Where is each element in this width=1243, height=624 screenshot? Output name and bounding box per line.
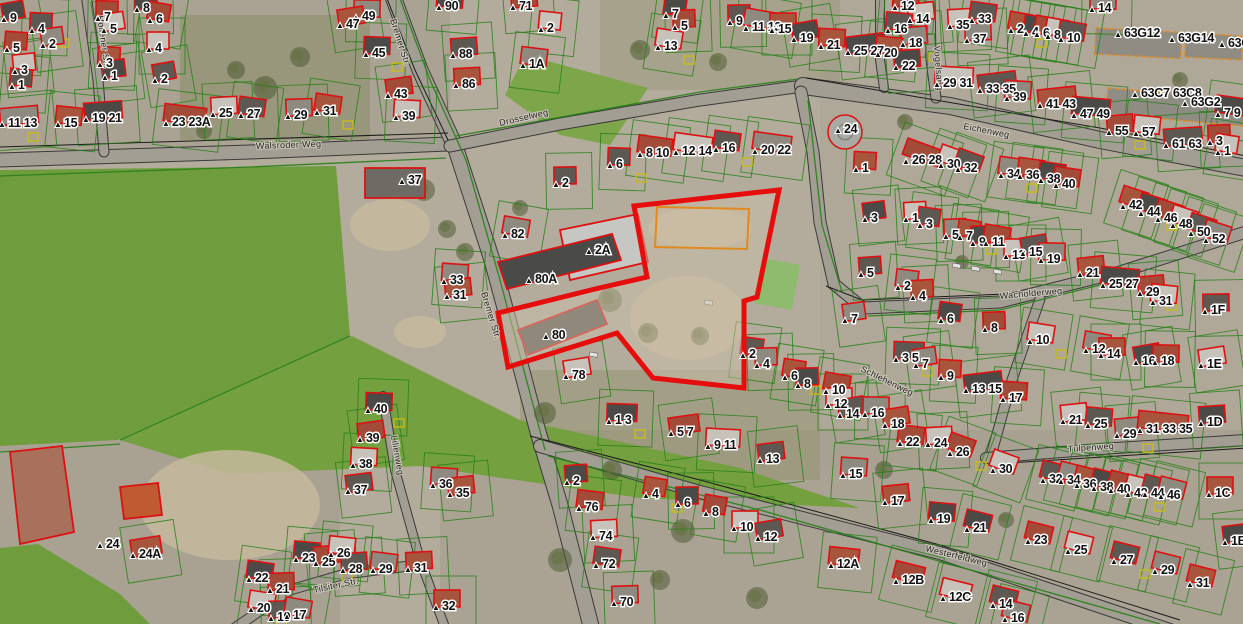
house-number-label: 78 xyxy=(572,368,586,382)
house-number-label: 9 11 xyxy=(714,438,737,452)
house-point-marker: ▲ xyxy=(726,18,734,27)
house-number-label: 5 xyxy=(867,266,874,280)
house-number-label: 49 xyxy=(362,9,376,23)
house-point-marker: ▲ xyxy=(937,161,945,170)
house-point-marker: ▲ xyxy=(313,108,321,117)
house-point-marker: ▲ xyxy=(362,50,370,59)
house-point-marker: ▲ xyxy=(790,35,798,44)
house-point-marker: ▲ xyxy=(129,551,137,560)
house-point-marker: ▲ xyxy=(754,534,762,543)
house-point-marker: ▲ xyxy=(552,180,560,189)
map-viewport[interactable]: Walsroder WegHollener Str.Bremer Str.Bre… xyxy=(0,0,1243,624)
house-point-marker: ▲ xyxy=(1201,307,1209,316)
house-point-marker: ▲ xyxy=(827,561,835,570)
house-point-marker: ▲ xyxy=(916,221,924,230)
house-number-label: 76 xyxy=(585,500,599,514)
house-point-marker: ▲ xyxy=(443,292,451,301)
house-point-marker: ▲ xyxy=(54,120,62,129)
house-number-label: 10 xyxy=(1036,333,1050,347)
house-number-label: 37 xyxy=(354,483,368,497)
house-number-label: 14 xyxy=(846,407,860,421)
house-number-label: 3 xyxy=(926,217,933,231)
house-point-marker: ▲ xyxy=(742,24,750,33)
house-point-marker: ▲ xyxy=(404,565,412,574)
house-number-label: 25 xyxy=(219,106,233,120)
house-number-label: 1E xyxy=(1207,357,1222,371)
house-point-marker: ▲ xyxy=(874,50,882,59)
house-number-label: 12 14 xyxy=(682,144,712,158)
house-point-marker: ▲ xyxy=(1052,181,1060,190)
house-point-marker: ▲ xyxy=(1044,32,1052,41)
house-point-marker: ▲ xyxy=(1131,90,1139,99)
house-point-marker: ▲ xyxy=(982,239,990,248)
house-number-label: 72 xyxy=(602,557,616,571)
house-number-label: 14 xyxy=(1098,1,1112,15)
house-number-label: 82 xyxy=(511,227,525,241)
tree-crown xyxy=(229,63,239,73)
house-point-marker: ▲ xyxy=(96,60,104,69)
house-point-marker: ▲ xyxy=(892,63,900,72)
house-number-label: 8 xyxy=(991,321,998,335)
house-point-marker: ▲ xyxy=(1084,421,1092,430)
house-point-marker: ▲ xyxy=(768,26,776,35)
house-point-marker: ▲ xyxy=(344,487,352,496)
house-point-marker: ▲ xyxy=(1110,557,1118,566)
planned-building-outline[interactable] xyxy=(655,207,749,249)
house-number-label: 29 xyxy=(1161,563,1175,577)
house-point-marker: ▲ xyxy=(525,276,533,285)
house-number-label: 3 xyxy=(106,56,113,70)
house-point-marker: ▲ xyxy=(662,11,670,20)
house-number-label: 90 xyxy=(445,0,459,13)
house-number-label: 4 xyxy=(38,22,45,36)
house-point-marker: ▲ xyxy=(1197,419,1205,428)
house-point-marker: ▲ xyxy=(101,73,109,82)
house-number-label: 31 33 35 xyxy=(1146,422,1193,436)
house-point-marker: ▲ xyxy=(1002,252,1010,261)
house-point-marker: ▲ xyxy=(605,417,613,426)
house-point-marker: ▲ xyxy=(999,395,1007,404)
house-number-label: 17 xyxy=(891,494,905,508)
house-number-label: 7 xyxy=(922,357,929,371)
house-point-marker: ▲ xyxy=(1141,490,1149,499)
house-point-marker: ▲ xyxy=(364,406,372,415)
house-number-label: 63G14 xyxy=(1178,31,1214,45)
house-point-marker: ▲ xyxy=(440,277,448,286)
house-point-marker: ▲ xyxy=(896,439,904,448)
house-point-marker: ▲ xyxy=(968,16,976,25)
house-point-marker: ▲ xyxy=(894,283,902,292)
house-point-marker: ▲ xyxy=(327,550,335,559)
house-point-marker: ▲ xyxy=(671,23,679,32)
house-number-label: 1B xyxy=(1231,534,1243,548)
house-point-marker: ▲ xyxy=(712,145,720,154)
house-number-label: 37 xyxy=(973,32,987,46)
tree-crown xyxy=(514,202,523,211)
house-point-marker: ▲ xyxy=(1076,270,1084,279)
house-point-marker: ▲ xyxy=(82,115,90,124)
house-point-marker: ▲ xyxy=(892,577,900,586)
house-number-label: 2 xyxy=(562,176,569,190)
house-number-label: 5 xyxy=(13,41,20,55)
house-point-marker: ▲ xyxy=(1105,128,1113,137)
house-number-label: 6 xyxy=(684,496,691,510)
house-number-label: 21 xyxy=(973,521,987,535)
house-point-marker: ▲ xyxy=(592,561,600,570)
house-point-marker: ▲ xyxy=(794,381,802,390)
house-number-label: 31 xyxy=(453,288,467,302)
house-number-label: 52 xyxy=(1212,232,1226,246)
house-point-marker: ▲ xyxy=(563,478,571,487)
tree-crown xyxy=(633,43,644,54)
house-point-marker: ▲ xyxy=(927,516,935,525)
house-point-marker: ▲ xyxy=(1057,35,1065,44)
house-point-marker: ▲ xyxy=(1097,351,1105,360)
house-point-marker: ▲ xyxy=(642,491,650,500)
house-point-marker: ▲ xyxy=(94,14,102,23)
house-point-marker: ▲ xyxy=(1136,426,1144,435)
house-point-marker: ▲ xyxy=(704,442,712,451)
tree-crown xyxy=(551,551,564,564)
house-number-label: 33 35 xyxy=(986,82,1016,96)
house-number-label: 9 xyxy=(947,369,954,383)
house-point-marker: ▲ xyxy=(1090,484,1098,493)
house-point-marker: ▲ xyxy=(963,36,971,45)
house-point-marker: ▲ xyxy=(1070,111,1078,120)
house-point-marker: ▲ xyxy=(891,3,899,12)
house-point-marker: ▲ xyxy=(1082,346,1090,355)
house-number-label: 14 xyxy=(999,597,1013,611)
house-number-label: 46 xyxy=(1167,488,1181,502)
house-point-marker: ▲ xyxy=(824,401,832,410)
building-large[interactable] xyxy=(10,446,74,544)
house-point-marker: ▲ xyxy=(145,45,153,54)
house-point-marker: ▲ xyxy=(962,386,970,395)
house-point-marker: ▲ xyxy=(937,373,945,382)
house-point-marker: ▲ xyxy=(969,239,977,248)
house-number-label: 29 31 xyxy=(943,76,973,90)
aerial-cadastral-map[interactable]: Walsroder WegHollener Str.Bremer Str.Bre… xyxy=(0,0,1243,624)
house-point-marker: ▲ xyxy=(432,603,440,612)
house-point-marker: ▲ xyxy=(245,575,253,584)
house-number-label: 57 xyxy=(1142,125,1156,139)
house-number-label: 31 xyxy=(323,104,337,118)
house-point-marker: ▲ xyxy=(1016,172,1024,181)
house-number-label: 12 xyxy=(764,530,778,544)
house-number-label: 19 xyxy=(937,512,951,526)
house-number-label: 1 xyxy=(111,69,118,83)
house-point-marker: ▲ xyxy=(356,435,364,444)
house-point-marker: ▲ xyxy=(836,411,844,420)
house-number-label: 16 xyxy=(871,406,885,420)
tree-crown xyxy=(877,463,887,473)
house-point-marker: ▲ xyxy=(1186,580,1194,589)
house-number-label: 25 27 xyxy=(1109,277,1139,291)
house-number-label: 24 xyxy=(934,436,948,450)
house-point-marker: ▲ xyxy=(1007,26,1015,35)
house-point-marker: ▲ xyxy=(1151,358,1159,367)
house-number-label: 38 xyxy=(359,457,373,471)
house-point-marker: ▲ xyxy=(946,22,954,31)
house-number-label: 20 22 xyxy=(761,143,791,157)
house-number-label: 23 xyxy=(1034,533,1048,547)
house-point-marker: ▲ xyxy=(997,171,1005,180)
house-point-marker: ▲ xyxy=(509,3,517,12)
tree-crown xyxy=(440,222,450,232)
house-number-label: 1 3 xyxy=(615,413,632,427)
house-number-label: 13 15 xyxy=(972,382,1002,396)
house-number-label: 39 xyxy=(402,109,416,123)
house-point-marker: ▲ xyxy=(654,43,662,52)
house-number-label: 4 xyxy=(155,41,162,55)
house-point-marker: ▲ xyxy=(933,80,941,89)
house-number-label: 80A xyxy=(535,272,557,286)
house-point-marker: ▲ xyxy=(1202,236,1210,245)
house-point-marker: ▲ xyxy=(1073,481,1081,490)
house-number-label: 21 xyxy=(1086,266,1100,280)
house-number-label: 10 xyxy=(832,383,846,397)
house-point-marker: ▲ xyxy=(1151,567,1159,576)
house-number-label: 12A xyxy=(837,557,859,571)
house-number-label: 5 7 xyxy=(677,425,694,439)
house-number-label: 8 10 xyxy=(646,146,669,160)
house-point-marker: ▲ xyxy=(1205,490,1213,499)
house-number-label: 17 xyxy=(293,608,307,622)
house-point-marker: ▲ xyxy=(369,566,377,575)
house-number-label: 19 21 xyxy=(92,111,122,125)
house-number-label: 63G12 xyxy=(1124,26,1160,40)
house-point-marker: ▲ xyxy=(1026,337,1034,346)
tree-crown xyxy=(605,463,616,474)
house-point-marker: ▲ xyxy=(881,498,889,507)
house-number-label: 8 xyxy=(143,1,150,15)
house-number-label: 14 xyxy=(1107,347,1121,361)
house-point-marker: ▲ xyxy=(237,111,245,120)
house-number-label: 61 63 xyxy=(1172,137,1202,151)
house-number-label: 71 xyxy=(519,0,533,13)
house-point-marker: ▲ xyxy=(292,555,300,564)
house-number-label: 21 xyxy=(276,582,290,596)
house-number-label: 3 xyxy=(21,63,28,77)
house-point-marker: ▲ xyxy=(1107,486,1115,495)
house-number-label: 18 xyxy=(1161,354,1175,368)
house-point-marker: ▲ xyxy=(861,215,869,224)
house-number-label: 22 xyxy=(906,435,920,449)
house-point-marker: ▲ xyxy=(989,601,997,610)
dirt-patch xyxy=(350,199,430,251)
house-point-marker: ▲ xyxy=(1132,358,1140,367)
house-point-marker: ▲ xyxy=(1197,361,1205,370)
house-number-label: 33 xyxy=(978,12,992,26)
house-point-marker: ▲ xyxy=(1154,215,1162,224)
house-point-marker: ▲ xyxy=(1124,490,1132,499)
house-number-label: 39 xyxy=(366,431,380,445)
house-point-marker: ▲ xyxy=(881,421,889,430)
house-point-marker: ▲ xyxy=(247,605,255,614)
house-point-marker: ▲ xyxy=(542,332,550,341)
house-number-label: 15 xyxy=(849,467,863,481)
house-number-label: 5 xyxy=(110,22,117,36)
house-point-marker: ▲ xyxy=(446,490,454,499)
house-point-marker: ▲ xyxy=(8,82,16,91)
tree-crown xyxy=(956,256,964,264)
house-point-marker: ▲ xyxy=(822,387,830,396)
house-number-label: 6 xyxy=(947,312,954,326)
house-point-marker: ▲ xyxy=(429,481,437,490)
house-point-marker: ▲ xyxy=(146,16,154,25)
house-point-marker: ▲ xyxy=(501,231,509,240)
house-point-marker: ▲ xyxy=(852,165,860,174)
house-point-marker: ▲ xyxy=(1059,417,1067,426)
house-number-label: 12B xyxy=(902,573,924,587)
house-number-label: 13 xyxy=(664,39,678,53)
house-number-label: 15 xyxy=(64,116,78,130)
house-point-marker: ▲ xyxy=(1037,176,1045,185)
house-number-label: 8 xyxy=(712,505,719,519)
house-point-marker: ▲ xyxy=(283,612,291,621)
house-point-marker: ▲ xyxy=(817,42,825,51)
house-point-marker: ▲ xyxy=(1187,229,1195,238)
house-point-marker: ▲ xyxy=(1001,615,1009,624)
house-point-marker: ▲ xyxy=(1149,298,1157,307)
house-point-marker: ▲ xyxy=(589,533,597,542)
house-point-marker: ▲ xyxy=(266,586,274,595)
house-number-label: 19 xyxy=(1047,252,1061,266)
tree-crown xyxy=(1000,514,1009,523)
house-number-label: 22 xyxy=(902,59,916,73)
house-number-label: 4 xyxy=(652,487,659,501)
house-point-marker: ▲ xyxy=(1119,202,1127,211)
house-number-label: 35 xyxy=(456,486,470,500)
house-point-marker: ▲ xyxy=(1157,492,1165,501)
house-number-label: 33 xyxy=(450,273,464,287)
house-number-label: 15 xyxy=(778,22,792,36)
house-point-marker: ▲ xyxy=(392,113,400,122)
house-number-label: 18 xyxy=(909,36,923,50)
house-number-label: 13 xyxy=(766,452,780,466)
house-point-marker: ▲ xyxy=(606,161,614,170)
house-number-label: 24 xyxy=(844,122,858,136)
house-point-marker: ▲ xyxy=(1214,110,1222,119)
house-point-marker: ▲ xyxy=(753,361,761,370)
house-number-label: 39 xyxy=(1013,90,1027,104)
house-point-marker: ▲ xyxy=(1036,101,1044,110)
house-point-marker: ▲ xyxy=(963,525,971,534)
house-point-marker: ▲ xyxy=(1137,209,1145,218)
building-large[interactable] xyxy=(120,483,162,519)
house-number-label: 6 xyxy=(616,157,623,171)
tree-crown xyxy=(653,573,664,584)
house-point-marker: ▲ xyxy=(976,86,984,95)
house-number-label: 88 xyxy=(459,47,473,61)
dirt-patch xyxy=(140,450,320,560)
house-point-marker: ▲ xyxy=(1136,289,1144,298)
tree-crown xyxy=(711,55,721,65)
house-point-marker: ▲ xyxy=(209,110,217,119)
house-point-marker: ▲ xyxy=(537,25,545,34)
house-number-label: 2 xyxy=(573,474,580,488)
house-point-marker: ▲ xyxy=(11,67,19,76)
house-number-label: 8 xyxy=(804,377,811,391)
house-point-marker: ▲ xyxy=(267,614,275,623)
house-point-marker: ▲ xyxy=(384,91,392,100)
house-point-marker: ▲ xyxy=(909,293,917,302)
house-number-label: 26 xyxy=(337,546,351,560)
house-point-marker: ▲ xyxy=(3,45,11,54)
house-number-label: 2 xyxy=(904,279,911,293)
house-number-label: 29 xyxy=(379,562,393,576)
house-number-label: 16 xyxy=(1011,611,1025,624)
house-number-label: 18 xyxy=(891,417,905,431)
house-number-label: 31 xyxy=(1196,576,1210,590)
house-number-label: 27 xyxy=(1120,553,1134,567)
house-point-marker: ▲ xyxy=(162,119,170,128)
house-point-marker: ▲ xyxy=(730,524,738,533)
house-number-label: 43 xyxy=(394,87,408,101)
house-number-label: 47 xyxy=(346,17,360,31)
house-point-marker: ▲ xyxy=(1206,138,1214,147)
house-number-label: 4 xyxy=(919,289,926,303)
house-point-marker: ▲ xyxy=(1218,40,1226,49)
house-point-marker: ▲ xyxy=(1003,94,1011,103)
house-point-marker: ▲ xyxy=(1024,537,1032,546)
house-point-marker: ▲ xyxy=(1037,256,1045,265)
house-point-marker: ▲ xyxy=(902,215,910,224)
house-number-label: 2A xyxy=(595,243,611,257)
house-number-label: 28 xyxy=(349,562,363,576)
house-point-marker: ▲ xyxy=(857,270,865,279)
house-point-marker: ▲ xyxy=(1221,538,1229,547)
house-point-marker: ▲ xyxy=(834,126,842,135)
house-number-label: 31 xyxy=(1159,294,1173,308)
house-point-marker: ▲ xyxy=(1181,99,1189,108)
house-point-marker: ▲ xyxy=(939,594,947,603)
house-point-marker: ▲ xyxy=(942,232,950,241)
house-point-marker: ▲ xyxy=(989,466,997,475)
house-point-marker: ▲ xyxy=(954,165,962,174)
house-number-label: 1 xyxy=(862,161,869,175)
house-point-marker: ▲ xyxy=(449,51,457,60)
house-number-label: 29 xyxy=(294,108,308,122)
house-number-label: 26 xyxy=(956,445,970,459)
house-point-marker: ▲ xyxy=(1039,476,1047,485)
house-point-marker: ▲ xyxy=(452,81,460,90)
house-number-label: 25 xyxy=(1094,417,1108,431)
house-number-label: 36 xyxy=(439,477,453,491)
house-point-marker: ▲ xyxy=(739,351,747,360)
house-number-label: 40 xyxy=(1062,177,1076,191)
house-point-marker: ▲ xyxy=(839,471,847,480)
house-number-label: 21 xyxy=(1069,413,1083,427)
house-point-marker: ▲ xyxy=(781,373,789,382)
house-number-label: 41 43 xyxy=(1046,97,1076,111)
house-number-label: 55 xyxy=(1115,124,1129,138)
house-point-marker: ▲ xyxy=(1168,35,1176,44)
house-point-marker: ▲ xyxy=(151,76,159,85)
house-number-label: 70 xyxy=(620,595,634,609)
house-number-label: 2 xyxy=(749,347,756,361)
house-number-label: 14 xyxy=(916,12,930,26)
house-number-label: 1 xyxy=(18,78,25,92)
house-number-label: 7 9 xyxy=(1224,106,1241,120)
house-number-label: 3 xyxy=(871,211,878,225)
house-number-label: 1D xyxy=(1207,415,1223,429)
house-point-marker: ▲ xyxy=(284,112,292,121)
house-number-label: 25 xyxy=(1074,543,1088,557)
house-point-marker: ▲ xyxy=(1019,249,1027,258)
house-number-label: 31 xyxy=(414,561,428,575)
house-point-marker: ▲ xyxy=(937,316,945,325)
